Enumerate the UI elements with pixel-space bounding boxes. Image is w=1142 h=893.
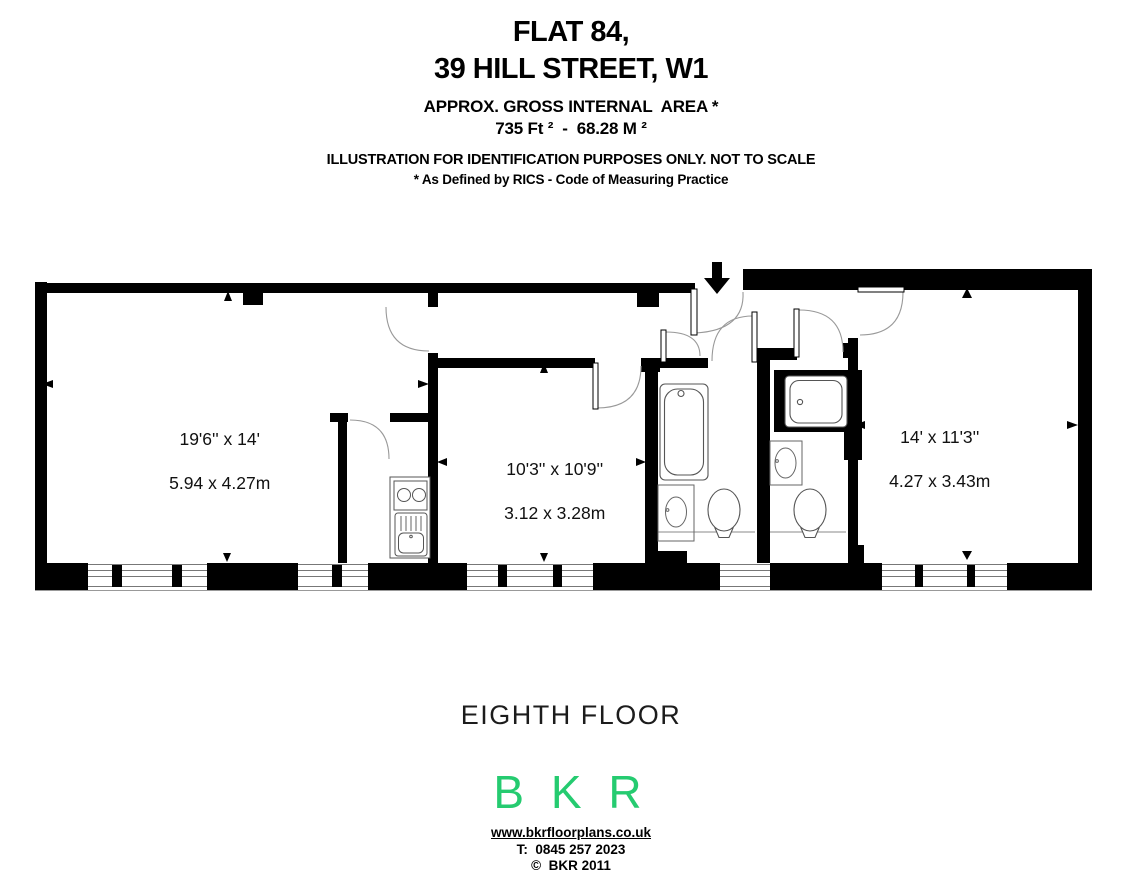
window [467, 565, 593, 587]
wall-bottom [770, 563, 882, 590]
kitchen-unit [390, 477, 430, 558]
room-dims-imperial: 19'6'' x 14' [179, 429, 260, 449]
shower-room-door-leaf [794, 309, 799, 357]
windows-layer [35, 565, 1092, 591]
bathtub-icon [660, 384, 708, 480]
wall-kitchenette-top [390, 413, 428, 422]
hall-door-leaf [661, 330, 666, 362]
bathroom-door-arc [712, 316, 753, 361]
wall-top-left [35, 283, 695, 293]
room-label-reception: 19'6'' x 14' 5.94 x 4.27m [60, 406, 360, 516]
bedroom-door-arc [597, 366, 641, 408]
wall-top-right [743, 269, 1092, 290]
room-label-bedroom-right: 14' x 11'3'' 4.27 x 3.43m [820, 404, 1040, 514]
entrance-door-leaf [691, 289, 697, 335]
sink-icon [770, 441, 802, 485]
bathroom-door-leaf [752, 312, 757, 362]
wall-bottom [207, 563, 298, 590]
wall-stub [428, 293, 438, 307]
room-dims-imperial: 10'3'' x 10'9'' [506, 459, 603, 479]
wall-shower-top [757, 348, 797, 360]
room-dims-imperial: 14' x 11'3'' [900, 427, 979, 447]
wall-bathroom-divider [757, 358, 770, 563]
floor-label: EIGHTH FLOOR [0, 700, 1142, 731]
entrance-door-arc [696, 292, 743, 333]
phone-number: T: 0845 257 2023 [0, 842, 1142, 857]
room-label-bedroom-middle: 10'3'' x 10'9'' 3.12 x 3.28m [435, 436, 655, 546]
window [720, 565, 770, 587]
sink-icon [658, 485, 694, 541]
wall-column [637, 283, 659, 307]
room-dims-metric: 3.12 x 3.28m [504, 503, 605, 523]
bedroom-right-door-arc [860, 292, 903, 335]
hall-door-arc [666, 332, 700, 356]
bedroom-door-leaf [593, 363, 598, 409]
website-link[interactable]: www.bkrfloorplans.co.uk [0, 825, 1142, 840]
shower-room-door-arc [799, 310, 843, 352]
wall-bottom [1007, 563, 1092, 590]
dim-arrow-down-icon [962, 551, 972, 560]
entrance-arrow-icon [704, 262, 730, 294]
toilet-icon [708, 489, 740, 538]
copyright-notice: © BKR 2011 [0, 858, 1142, 873]
kitchen-hob-icon [394, 481, 427, 510]
wall-bottom [35, 563, 88, 590]
dim-arrow-down-icon [223, 553, 231, 562]
dim-arrow-right-icon [418, 380, 429, 388]
wall-bottom [593, 563, 720, 590]
wall-left [35, 282, 47, 590]
bedroom-right-door-leaf [858, 287, 904, 292]
wall-bottom [368, 563, 467, 590]
dim-arrow-down-icon [540, 553, 548, 562]
bkr-logo: B K R [0, 765, 1142, 819]
window [88, 565, 207, 587]
room-dims-metric: 5.94 x 4.27m [169, 473, 270, 493]
wall-bottom [647, 551, 687, 564]
dim-arrow-right-icon [1067, 421, 1078, 429]
wall-column [243, 283, 263, 305]
wall-bedroom-top [428, 358, 595, 368]
window [882, 565, 1007, 587]
wall-bottom [848, 545, 864, 564]
wall-right [1078, 269, 1092, 590]
kitchen-sink-icon [395, 513, 427, 556]
floorplan-page: FLAT 84, 39 HILL STREET, W1 APPROX. GROS… [0, 0, 1142, 893]
reception-door-arc [386, 307, 429, 351]
room-dims-metric: 4.27 x 3.43m [889, 471, 990, 491]
